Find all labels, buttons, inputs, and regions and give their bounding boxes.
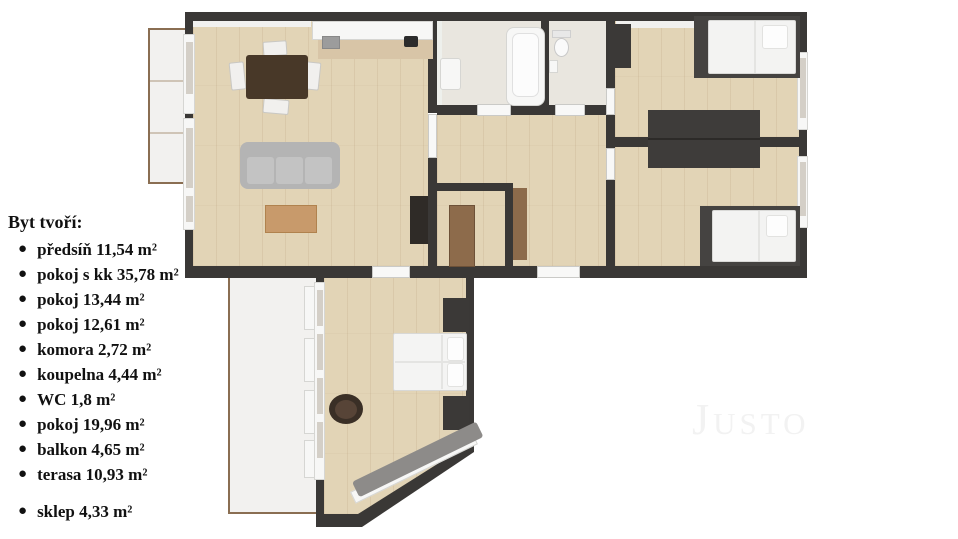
coffee-table [265, 205, 317, 233]
bedroom1-cabinet [609, 24, 631, 68]
hall-cabinet [513, 188, 527, 260]
wall-bath-bottom [585, 105, 606, 115]
bed-pillow [762, 25, 788, 49]
wc-sink [549, 60, 558, 73]
sofa-cushion [276, 157, 303, 184]
bathtub-basin [512, 33, 539, 97]
window-glass [186, 42, 193, 94]
wall-hall-bedrooms [606, 180, 615, 278]
window-glass [317, 290, 323, 326]
balcony [148, 28, 188, 184]
bathroom-sink [440, 58, 461, 90]
door-bathroom [477, 104, 511, 116]
wall-bath-bottom [437, 105, 477, 115]
wall-bath-bottom [511, 105, 555, 115]
door-bedroom1 [606, 88, 615, 115]
wall-closet-right [505, 183, 513, 266]
nightstand [443, 396, 469, 430]
nightstand [443, 298, 469, 332]
wall-closet-top [437, 183, 513, 191]
toilet-tank [552, 30, 571, 38]
door-entrance [537, 266, 580, 278]
bed-pillow [447, 337, 464, 361]
sofa-cushion [247, 157, 274, 184]
door-living-hall [428, 114, 437, 158]
bed-fold [754, 21, 756, 73]
dining-table [246, 55, 308, 99]
kitchen-sink [404, 36, 418, 47]
door-wc [555, 104, 585, 116]
door-bedroom2 [606, 148, 615, 180]
bed-pillow [447, 363, 464, 387]
balcony-divider [150, 80, 186, 82]
floor-plan [0, 0, 958, 539]
window-glass [317, 422, 323, 458]
toilet [554, 38, 569, 57]
cooktop [322, 36, 340, 49]
wall-living-hall [428, 158, 437, 278]
wall-hall-bedrooms [606, 115, 615, 148]
bed-fold [441, 335, 443, 389]
bed-fold [758, 211, 760, 261]
window-glass [800, 58, 806, 118]
chair [229, 61, 247, 90]
window-glass [186, 196, 193, 222]
door-bottom-room [372, 266, 410, 278]
door-closet [449, 205, 475, 267]
armchair-seat [335, 400, 357, 419]
floorplan-page: Byt tvoří: ●předsíň 11,54 m² ●pokoj s kk… [0, 0, 958, 539]
wall-bottom [185, 266, 372, 278]
sideboard [410, 196, 428, 244]
bed-pillow [766, 215, 788, 237]
watermark: Justo [692, 394, 810, 445]
wall-face [193, 21, 311, 27]
wardrobe-seam [648, 138, 760, 140]
window-glass [317, 378, 323, 414]
balcony-divider [150, 132, 186, 134]
window-glass [186, 128, 193, 188]
window-glass [800, 162, 806, 216]
sofa-cushion [305, 157, 332, 184]
bed-fold [395, 361, 465, 363]
chair [262, 98, 289, 115]
window-glass [317, 334, 323, 370]
